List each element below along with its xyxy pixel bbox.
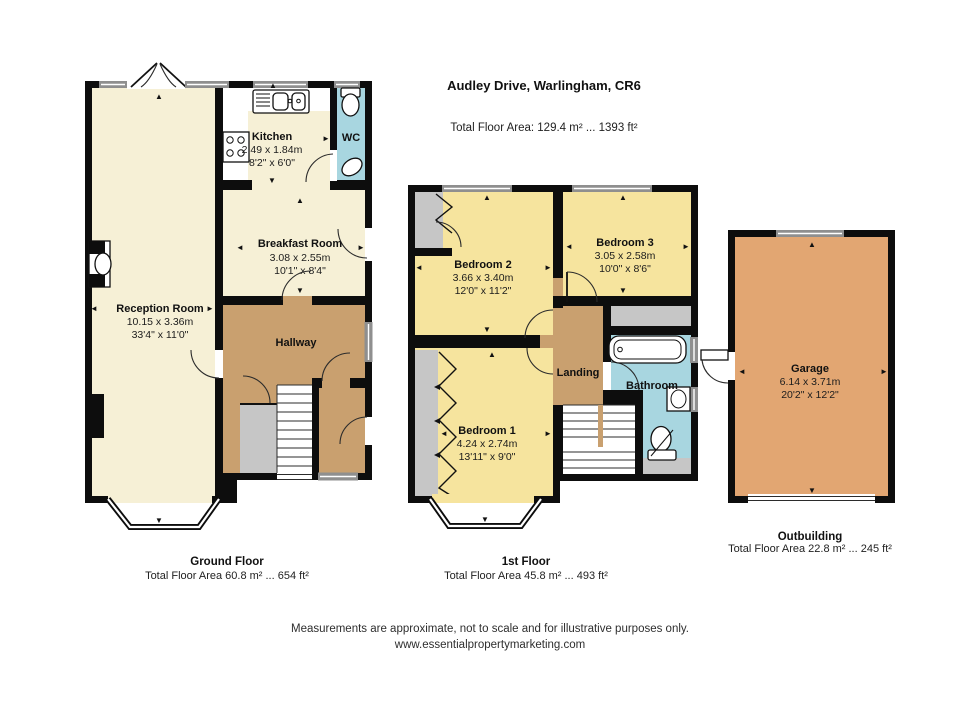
outbuilding-caption: Outbuilding bbox=[778, 531, 843, 543]
kitchen-sink bbox=[253, 90, 309, 113]
floorplan-page: Reception Room 10.15 x 3.36m 33'4" x 11'… bbox=[0, 0, 980, 718]
arrow-down-icon: ▼ bbox=[481, 515, 489, 524]
arrow-left-icon: ◄ bbox=[236, 243, 244, 252]
french-doors bbox=[127, 63, 186, 89]
arrow-right-icon: ► bbox=[357, 243, 365, 252]
arrow-up-icon: ▲ bbox=[488, 350, 496, 359]
window bbox=[253, 81, 308, 88]
bedroom2-door-gap bbox=[553, 308, 563, 336]
window bbox=[690, 337, 698, 363]
room-label: Kitchen bbox=[252, 131, 293, 143]
window bbox=[442, 185, 512, 192]
window bbox=[318, 473, 358, 481]
wall bbox=[635, 398, 643, 474]
room-dim-m: 6.14 x 3.71m bbox=[780, 376, 841, 388]
room-dim-m: 2.49 x 1.84m bbox=[242, 144, 303, 156]
arrow-left-icon: ◄ bbox=[440, 429, 448, 438]
room-label: Hallway bbox=[276, 337, 318, 349]
arrow-down-icon: ▼ bbox=[155, 516, 163, 525]
reception-door-gap bbox=[215, 350, 223, 378]
arrow-up-icon: ▲ bbox=[619, 193, 627, 202]
wall bbox=[408, 248, 452, 256]
arrow-up-icon: ▲ bbox=[808, 240, 816, 249]
room-label: Bedroom 3 bbox=[596, 237, 653, 249]
room-label: WC bbox=[342, 132, 360, 144]
room-label: Breakfast Room bbox=[258, 238, 343, 250]
room-dim-ft: 33'4" x 11'0" bbox=[132, 329, 189, 341]
outbuilding-area: Total Floor Area 22.8 m² ... 245 ft² bbox=[728, 543, 892, 555]
side-door-gap bbox=[365, 228, 372, 261]
arrow-right-icon: ► bbox=[544, 263, 552, 272]
wall bbox=[330, 180, 372, 190]
lobby-door-gap bbox=[322, 378, 350, 388]
arrow-right-icon: ► bbox=[682, 242, 690, 251]
disclaimer-line2: www.essentialpropertymarketing.com bbox=[394, 639, 585, 651]
window bbox=[776, 230, 844, 237]
arrow-down-icon: ▼ bbox=[483, 325, 491, 334]
arrow-right-icon: ► bbox=[544, 429, 552, 438]
under-stairs-cupboard bbox=[240, 405, 277, 473]
room-dim-m: 10.15 x 3.36m bbox=[127, 316, 194, 328]
ground-floor-plan: Reception Room 10.15 x 3.36m 33'4" x 11'… bbox=[85, 63, 373, 527]
arrow-up-icon: ▲ bbox=[269, 81, 277, 90]
wall bbox=[553, 296, 691, 306]
plan-title: Audley Drive, Warlingham, CR6 bbox=[447, 78, 641, 93]
wall bbox=[215, 180, 252, 190]
window bbox=[572, 185, 652, 192]
bathtub bbox=[609, 336, 686, 363]
fireplace bbox=[89, 241, 111, 287]
bedroom3-door-gap bbox=[553, 278, 563, 296]
staircase bbox=[563, 405, 635, 474]
garage-side-door bbox=[701, 350, 735, 383]
arrow-down-icon: ▼ bbox=[268, 176, 276, 185]
room-label: Landing bbox=[557, 367, 600, 379]
arrow-left-icon: ◄ bbox=[565, 242, 573, 251]
ground-floor-caption: Ground Floor bbox=[190, 556, 264, 568]
room-label: Bedroom 1 bbox=[458, 425, 515, 437]
toilet bbox=[341, 88, 360, 116]
arrow-right-icon: ► bbox=[322, 134, 330, 143]
arrow-right-icon: ► bbox=[206, 304, 214, 313]
first-floor-plan: Bedroom 2 3.66 x 3.40m 12'0" x 11'2" Bed… bbox=[408, 185, 698, 526]
arrow-left-icon: ◄ bbox=[738, 367, 746, 376]
room-label: Garage bbox=[791, 363, 829, 375]
room-dim-ft: 10'0" x 8'6" bbox=[599, 263, 651, 275]
disclaimer-line1: Measurements are approximate, not to sca… bbox=[291, 623, 689, 635]
room-dim-ft: 12'0" x 11'2" bbox=[455, 285, 512, 297]
bay-window bbox=[108, 494, 219, 527]
plan-subtitle: Total Floor Area: 129.4 m² ... 1393 ft² bbox=[450, 122, 637, 134]
reception-room-floor bbox=[92, 88, 215, 496]
arrow-up-icon: ▲ bbox=[296, 196, 304, 205]
room-label: Reception Room bbox=[116, 303, 204, 315]
window bbox=[690, 387, 698, 412]
window bbox=[365, 322, 373, 362]
room-label: Bathroom bbox=[626, 380, 678, 392]
wall bbox=[603, 326, 698, 335]
wall bbox=[312, 378, 319, 473]
ground-floor-area: Total Floor Area 60.8 m² ... 654 ft² bbox=[145, 570, 309, 582]
breakfast-door-gap bbox=[283, 296, 312, 305]
garage-door bbox=[748, 494, 875, 503]
wall bbox=[408, 335, 553, 348]
arrow-down-icon: ▼ bbox=[296, 286, 304, 295]
room-dim-ft: 8'2" x 6'0" bbox=[249, 157, 295, 169]
window bbox=[334, 81, 360, 88]
airing-cupboard bbox=[611, 306, 691, 328]
first-floor-area: Total Floor Area 45.8 m² ... 493 ft² bbox=[444, 570, 608, 582]
staircase bbox=[277, 385, 312, 481]
floorplan-canvas: Reception Room 10.15 x 3.36m 33'4" x 11'… bbox=[0, 0, 980, 718]
room-dim-ft: 20'2" x 12'2" bbox=[781, 389, 839, 401]
room-dim-m: 3.08 x 2.55m bbox=[270, 252, 331, 264]
first-floor-caption: 1st Floor bbox=[502, 556, 551, 568]
outbuilding-plan: Garage 6.14 x 3.71m 20'2" x 12'2" ▲ ▼ ◄ … bbox=[701, 230, 895, 503]
window bbox=[99, 81, 127, 88]
bathroom-door-gap bbox=[603, 362, 611, 390]
room-dim-m: 3.66 x 3.40m bbox=[453, 272, 514, 284]
arrow-up-icon: ▲ bbox=[483, 193, 491, 202]
arrow-down-icon: ▼ bbox=[808, 486, 816, 495]
front-door-gap bbox=[365, 417, 372, 445]
room-label: Bedroom 2 bbox=[454, 259, 511, 271]
room-dim-m: 3.05 x 2.58m bbox=[595, 250, 656, 262]
room-dim-m: 4.24 x 2.74m bbox=[457, 438, 518, 450]
arrow-right-icon: ► bbox=[880, 367, 888, 376]
arrow-left-icon: ◄ bbox=[415, 263, 423, 272]
bedroom1-door-gap bbox=[540, 335, 553, 348]
arrow-up-icon: ▲ bbox=[155, 92, 163, 101]
room-dim-ft: 10'1" x 8'4" bbox=[274, 265, 326, 277]
room-dim-ft: 13'11" x 9'0" bbox=[459, 451, 516, 463]
chimney-breast bbox=[88, 394, 104, 438]
arrow-left-icon: ◄ bbox=[90, 304, 98, 313]
arrow-down-icon: ▼ bbox=[619, 286, 627, 295]
window bbox=[185, 81, 229, 88]
